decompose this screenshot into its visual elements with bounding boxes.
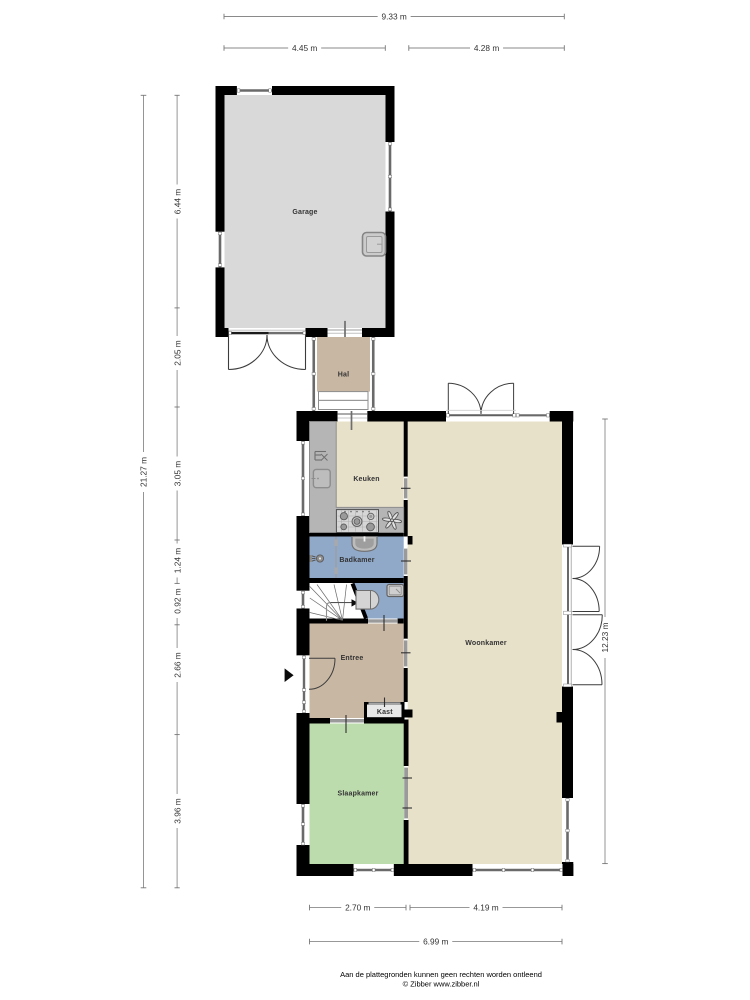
svg-text:© Zibber www.zibber.nl: © Zibber www.zibber.nl (403, 980, 480, 989)
svg-text:Hal: Hal (338, 371, 349, 378)
svg-text:2.66 m: 2.66 m (172, 652, 182, 677)
svg-text:Entree: Entree (341, 655, 364, 662)
svg-text:Woonkamer: Woonkamer (465, 640, 507, 647)
svg-text:Kast: Kast (377, 709, 393, 716)
svg-text:2.70 m: 2.70 m (345, 903, 370, 913)
svg-text:2.05 m: 2.05 m (172, 340, 182, 365)
svg-text:Keuken: Keuken (353, 476, 379, 483)
svg-text:12.23 m: 12.23 m (600, 622, 610, 652)
svg-text:4.45 m: 4.45 m (292, 43, 317, 53)
svg-text:4.28 m: 4.28 m (474, 43, 499, 53)
svg-text:Badkamer: Badkamer (339, 557, 374, 564)
svg-text:0.92 m: 0.92 m (172, 588, 182, 613)
svg-text:21.27 m: 21.27 m (139, 457, 149, 487)
svg-text:Aan de plattegronden kunnen ge: Aan de plattegronden kunnen geen rechten… (340, 970, 542, 979)
svg-text:4.19 m: 4.19 m (473, 903, 498, 913)
svg-text:6.99 m: 6.99 m (423, 937, 448, 947)
svg-text:3.05 m: 3.05 m (172, 461, 182, 486)
svg-text:Slaapkamer: Slaapkamer (337, 791, 378, 798)
svg-text:6.44 m: 6.44 m (172, 189, 182, 214)
svg-text:3.96 m: 3.96 m (172, 798, 182, 823)
svg-text:1.24 m: 1.24 m (172, 548, 182, 573)
svg-text:9.33 m: 9.33 m (381, 12, 406, 22)
svg-text:Garage: Garage (292, 209, 317, 216)
